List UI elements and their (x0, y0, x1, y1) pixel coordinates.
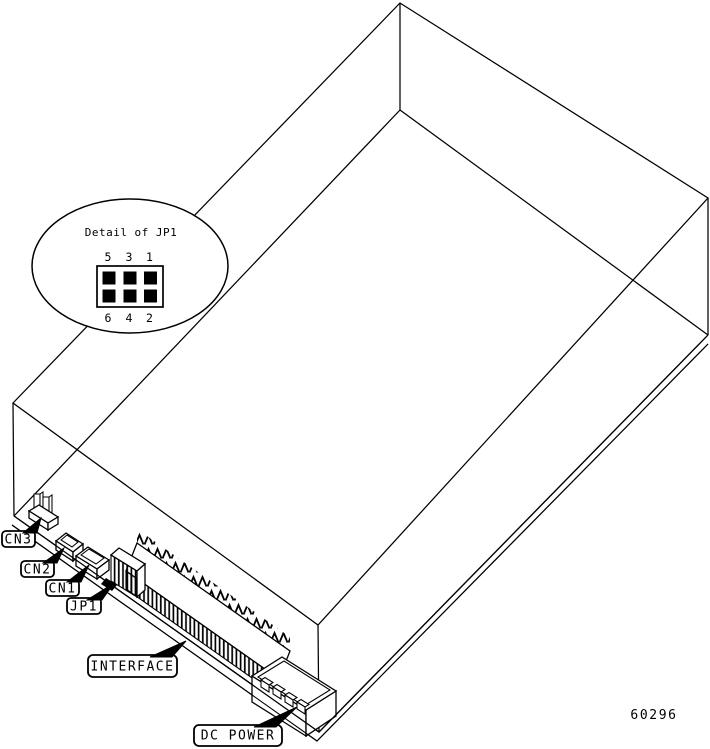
jumper-pin (144, 272, 157, 285)
figure-number: 60296 (630, 708, 677, 723)
jumper-pin (124, 272, 137, 285)
jumper-pin (103, 272, 116, 285)
callout-interface: INTERFACE (88, 641, 186, 677)
callout-cn2: CN2 (21, 548, 64, 578)
chassis-hidden-bottom-right-edge (400, 110, 708, 335)
connectors (12, 335, 708, 741)
pin-label-4: 4 (126, 311, 133, 325)
chassis-wireframe (12, 3, 708, 741)
detail-balloon-title: Detail of JP1 (85, 226, 178, 239)
pin-label-6: 6 (105, 311, 112, 325)
callout-cn1-label: CN1 (49, 582, 77, 597)
callout-cn2-label: CN2 (24, 563, 52, 578)
callout-cn3-label: CN3 (5, 533, 33, 548)
jumper-pin (144, 290, 157, 303)
pcb-edge-lip-lines (12, 344, 708, 741)
pin-label-5: 5 (105, 250, 112, 264)
callout-jp1-label: JP1 (70, 600, 98, 615)
board-lip-overlay (12, 344, 708, 741)
callout-dc-power-label: DC POWER (201, 729, 276, 744)
callout-cn3: CN3 (2, 518, 41, 548)
callout-interface-label: INTERFACE (91, 660, 175, 675)
callout-cn2-pointer (43, 548, 64, 563)
pin-label-3: 3 (126, 250, 133, 264)
pin-label-1: 1 (146, 250, 153, 264)
detail-balloon: Detail of JP1 5 3 1 6 4 2 (32, 199, 228, 333)
callout-interface-pointer (150, 641, 186, 657)
callout-jp1-pointer (87, 583, 114, 600)
drive-connector-diagram: Detail of JP1 5 3 1 6 4 2 (0, 0, 710, 749)
jumper-pin (124, 290, 137, 303)
pin-label-2: 2 (146, 311, 153, 325)
jumper-pin (103, 290, 116, 303)
chassis-left-vertical-edge (13, 403, 14, 516)
